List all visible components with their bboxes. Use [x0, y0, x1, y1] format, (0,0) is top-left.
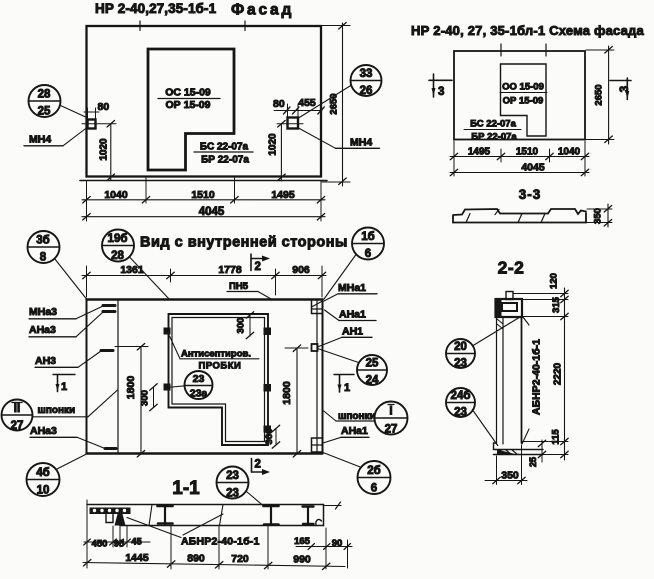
svg-text:БР 22-07а: БР 22-07а — [201, 155, 249, 166]
svg-text:шпонки: шпонки — [38, 405, 76, 416]
svg-text:Антисептиров.: Антисептиров. — [181, 349, 251, 360]
svg-text:ОР 15-09: ОР 15-09 — [503, 96, 544, 107]
svg-text:4045: 4045 — [199, 206, 225, 218]
svg-text:95: 95 — [114, 539, 125, 550]
svg-text:1-1: 1-1 — [172, 478, 200, 499]
svg-text:2: 2 — [255, 459, 261, 471]
svg-text:906: 906 — [292, 264, 310, 276]
svg-text:1510: 1510 — [191, 189, 215, 201]
svg-text:1020: 1020 — [268, 133, 279, 156]
svg-text:АБНР2-40-1б-1: АБНР2-40-1б-1 — [181, 536, 260, 548]
svg-text:33: 33 — [360, 68, 373, 80]
svg-text:27: 27 — [385, 424, 398, 436]
svg-text:80: 80 — [273, 98, 285, 110]
svg-text:ОР 15-09: ОР 15-09 — [166, 99, 211, 111]
svg-text:19б: 19б — [108, 233, 128, 245]
svg-text:80: 80 — [98, 101, 110, 113]
svg-text:23: 23 — [454, 407, 467, 419]
svg-text:45: 45 — [131, 537, 142, 548]
svg-text:450: 450 — [92, 539, 108, 550]
svg-text:2-2: 2-2 — [498, 258, 525, 278]
svg-text:26: 26 — [360, 85, 373, 97]
svg-text:315: 315 — [551, 296, 562, 313]
svg-text:2220: 2220 — [553, 362, 564, 385]
svg-text:ОС 15-09: ОС 15-09 — [165, 87, 211, 99]
svg-text:300: 300 — [264, 429, 275, 445]
svg-text:2650: 2650 — [329, 93, 340, 114]
svg-text:БС 22-07а: БС 22-07а — [200, 142, 249, 153]
svg-text:890: 890 — [187, 553, 205, 565]
svg-text:90: 90 — [332, 538, 343, 549]
svg-text:1445: 1445 — [125, 552, 149, 564]
svg-text:ПН5: ПН5 — [229, 281, 249, 292]
svg-text:МНа3: МНа3 — [29, 306, 57, 318]
svg-text:300: 300 — [236, 318, 247, 334]
svg-text:23: 23 — [226, 470, 239, 482]
svg-text:23: 23 — [226, 488, 239, 500]
svg-text:АНа1: АНа1 — [339, 309, 366, 321]
svg-text:10: 10 — [37, 485, 50, 497]
svg-text:23а: 23а — [190, 388, 208, 400]
svg-text:Вид с внутренней стороны: Вид с внутренней стороны — [140, 235, 348, 251]
svg-text:720: 720 — [231, 553, 249, 565]
svg-text:3: 3 — [438, 86, 444, 98]
svg-text:1040: 1040 — [104, 189, 128, 201]
svg-text:28: 28 — [38, 89, 51, 101]
svg-text:25: 25 — [38, 106, 51, 118]
svg-text:1040: 1040 — [558, 147, 581, 158]
svg-text:1800: 1800 — [125, 376, 137, 400]
svg-text:2: 2 — [255, 261, 261, 273]
svg-text:24: 24 — [366, 375, 379, 387]
svg-text:3б: 3б — [36, 235, 50, 247]
svg-text:2650: 2650 — [594, 84, 605, 105]
svg-text:АБНР2-40-1б-1: АБНР2-40-1б-1 — [531, 339, 543, 415]
svg-text:Фасад: Фасад — [231, 2, 294, 19]
svg-text:II: II — [14, 403, 20, 415]
svg-text:ПРОБКИ: ПРОБКИ — [199, 361, 242, 372]
svg-text:МН4: МН4 — [29, 134, 51, 146]
svg-text:БС 22-07а: БС 22-07а — [470, 119, 517, 130]
svg-text:1495: 1495 — [468, 147, 491, 158]
svg-text:115: 115 — [551, 429, 562, 445]
svg-text:6: 6 — [365, 248, 371, 260]
svg-text:1495: 1495 — [271, 189, 295, 201]
svg-text:МН4: МН4 — [350, 137, 372, 149]
svg-text:3-3: 3-3 — [519, 187, 542, 202]
svg-text:2б: 2б — [367, 465, 381, 477]
svg-text:990: 990 — [293, 554, 311, 566]
svg-text:3: 3 — [619, 86, 631, 92]
svg-text:120: 120 — [549, 273, 560, 289]
svg-text:23: 23 — [454, 358, 467, 370]
svg-text:1361: 1361 — [120, 264, 144, 276]
svg-text:350: 350 — [501, 470, 519, 482]
svg-text:БР 22-07а: БР 22-07а — [471, 132, 517, 143]
svg-text:1: 1 — [344, 382, 350, 394]
svg-text:I: I — [389, 406, 392, 418]
svg-text:НР 2-40,27,35-1б-1: НР 2-40,27,35-1б-1 — [95, 1, 217, 16]
svg-text:455: 455 — [298, 97, 316, 109]
svg-text:АНа3: АНа3 — [30, 425, 57, 437]
svg-text:6: 6 — [371, 483, 377, 495]
svg-text:25: 25 — [366, 358, 379, 370]
svg-text:АН3: АН3 — [35, 355, 56, 367]
svg-text:МНа1: МНа1 — [338, 282, 366, 294]
svg-text:АНа3: АНа3 — [29, 324, 56, 336]
svg-text:1778: 1778 — [218, 264, 242, 276]
svg-text:1б: 1б — [361, 231, 375, 243]
svg-text:25: 25 — [528, 457, 538, 467]
svg-text:23: 23 — [193, 373, 205, 385]
svg-text:4б: 4б — [36, 467, 50, 479]
svg-text:27: 27 — [11, 420, 24, 432]
svg-text:1800: 1800 — [281, 381, 293, 405]
svg-text:350: 350 — [593, 208, 604, 224]
svg-text:300: 300 — [140, 390, 151, 406]
svg-text:1510: 1510 — [516, 147, 539, 158]
svg-text:28: 28 — [111, 250, 124, 262]
svg-text:4045: 4045 — [521, 162, 545, 174]
svg-text:ОО 15-09: ОО 15-09 — [502, 82, 544, 93]
svg-text:1020: 1020 — [99, 138, 110, 161]
svg-text:20: 20 — [454, 341, 467, 353]
svg-text:АНа1: АНа1 — [341, 425, 368, 437]
svg-text:шпонки: шпонки — [338, 411, 376, 422]
svg-text:8: 8 — [40, 252, 47, 264]
svg-text:165: 165 — [294, 536, 311, 547]
svg-text:НР 2-40, 27, 35-1бл-1 Схема фа: НР 2-40, 27, 35-1бл-1 Схема фасада — [411, 23, 644, 38]
svg-text:АН1: АН1 — [342, 326, 363, 338]
svg-text:1: 1 — [61, 381, 67, 393]
svg-text:24б: 24б — [451, 390, 471, 402]
